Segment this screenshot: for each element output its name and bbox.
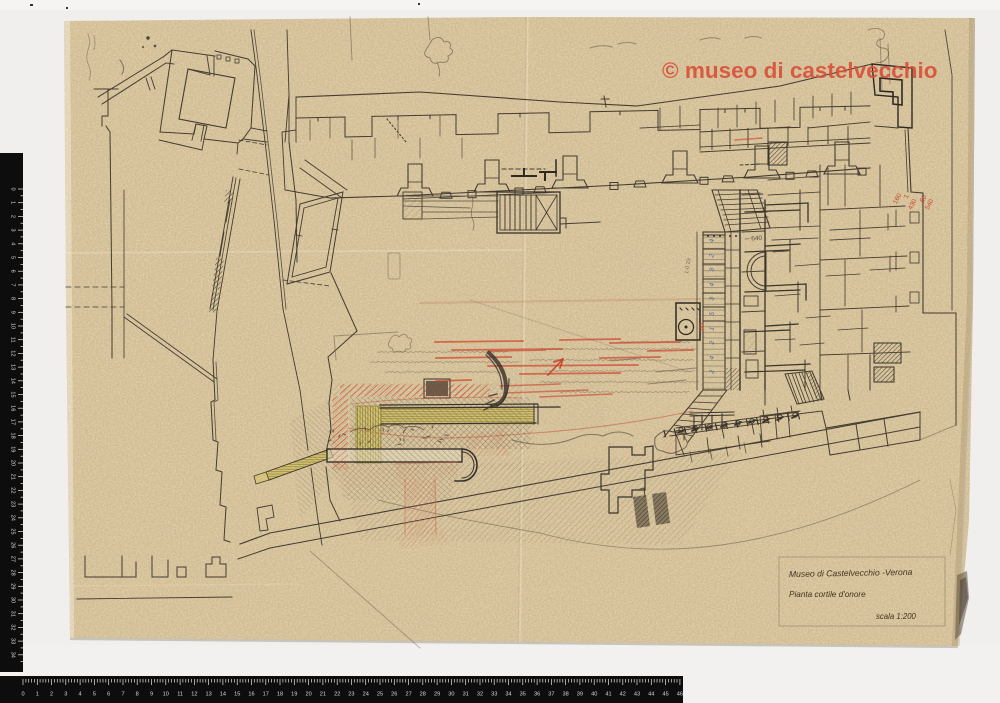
svg-text:10: 10 [163, 692, 169, 698]
svg-text:25: 25 [10, 528, 16, 534]
svg-text:40: 40 [591, 692, 597, 698]
svg-text:18: 18 [277, 692, 283, 698]
svg-text:41: 41 [605, 692, 611, 698]
svg-text:26: 26 [10, 542, 16, 548]
svg-text:46: 46 [677, 692, 683, 698]
svg-text:11: 11 [177, 692, 183, 698]
svg-text:21: 21 [10, 474, 16, 480]
svg-text:9: 9 [10, 311, 16, 314]
svg-text:38: 38 [562, 692, 568, 698]
svg-text:23: 23 [10, 501, 16, 507]
svg-text:19: 19 [291, 692, 297, 698]
svg-text:35: 35 [520, 692, 526, 698]
svg-text:5: 5 [93, 692, 96, 698]
svg-text:39: 39 [577, 692, 583, 698]
svg-text:19: 19 [10, 446, 16, 452]
svg-text:36: 36 [534, 692, 540, 698]
svg-text:16: 16 [10, 405, 16, 411]
svg-text:6: 6 [107, 692, 110, 698]
svg-text:scala 1:200: scala 1:200 [876, 612, 917, 621]
svg-text:11: 11 [10, 337, 16, 343]
svg-text:2: 2 [50, 692, 53, 698]
svg-text:16: 16 [248, 692, 254, 698]
svg-text:27: 27 [405, 692, 411, 698]
svg-text:20: 20 [10, 460, 16, 466]
svg-text:17: 17 [263, 692, 269, 698]
svg-text:22: 22 [334, 692, 340, 698]
svg-text:34: 34 [505, 692, 511, 698]
svg-text:9: 9 [150, 692, 153, 698]
svg-text:29: 29 [434, 692, 440, 698]
svg-text:25: 25 [377, 692, 383, 698]
svg-text:44: 44 [648, 692, 654, 698]
svg-text:3: 3 [64, 692, 67, 698]
svg-text:4: 4 [10, 242, 16, 245]
svg-text:8: 8 [10, 297, 16, 300]
svg-text:12: 12 [10, 350, 16, 356]
svg-text:0: 0 [21, 692, 24, 698]
svg-text:21: 21 [320, 692, 326, 698]
svg-text:12: 12 [191, 692, 197, 698]
svg-text:24: 24 [10, 515, 16, 521]
svg-text:42: 42 [620, 692, 626, 698]
svg-text:5: 5 [10, 256, 16, 259]
svg-text:0: 0 [10, 187, 16, 190]
svg-text:45: 45 [662, 692, 668, 698]
svg-text:10: 10 [10, 323, 16, 329]
svg-text:15: 15 [234, 692, 240, 698]
svg-text:14: 14 [220, 692, 226, 698]
svg-text:27: 27 [10, 556, 16, 562]
svg-text:26: 26 [391, 692, 397, 698]
svg-text:32: 32 [477, 692, 483, 698]
svg-text:28: 28 [10, 569, 16, 575]
svg-text:33: 33 [491, 692, 497, 698]
svg-text:30: 30 [448, 692, 454, 698]
svg-text:13: 13 [205, 692, 211, 698]
svg-text:29: 29 [10, 583, 16, 589]
svg-text:28: 28 [420, 692, 426, 698]
svg-text:1: 1 [36, 692, 39, 698]
svg-text:23: 23 [348, 692, 354, 698]
svg-text:34: 34 [10, 652, 16, 658]
svg-text:32: 32 [10, 624, 16, 630]
svg-text:24: 24 [363, 692, 369, 698]
svg-text:15: 15 [10, 391, 16, 397]
svg-text:37: 37 [548, 692, 554, 698]
svg-text:18: 18 [10, 432, 16, 438]
svg-text:30: 30 [10, 597, 16, 603]
svg-text:43: 43 [634, 692, 640, 698]
svg-text:20: 20 [305, 692, 311, 698]
svg-text:31: 31 [463, 692, 469, 698]
svg-text:22: 22 [10, 487, 16, 493]
svg-text:17: 17 [10, 419, 16, 425]
svg-text:33: 33 [10, 638, 16, 644]
svg-text:Pianta cortile d'onore: Pianta cortile d'onore [789, 590, 866, 599]
svg-text:6: 6 [10, 270, 16, 273]
svg-text:2: 2 [10, 215, 16, 218]
svg-text:7: 7 [121, 692, 124, 698]
svg-text:14: 14 [10, 378, 16, 384]
svg-text:8: 8 [136, 692, 139, 698]
svg-text:13: 13 [10, 364, 16, 370]
svg-text:─ 640: ─ 640 [744, 235, 763, 243]
svg-text:593: 593 [699, 322, 706, 332]
svg-text:4: 4 [79, 692, 82, 698]
svg-text:1: 1 [10, 201, 16, 204]
svg-text:3: 3 [10, 229, 16, 232]
svg-text:7: 7 [10, 283, 16, 286]
svg-text:31: 31 [10, 611, 16, 617]
svg-text:© museo di castelvecchio: © museo di castelvecchio [662, 58, 937, 83]
